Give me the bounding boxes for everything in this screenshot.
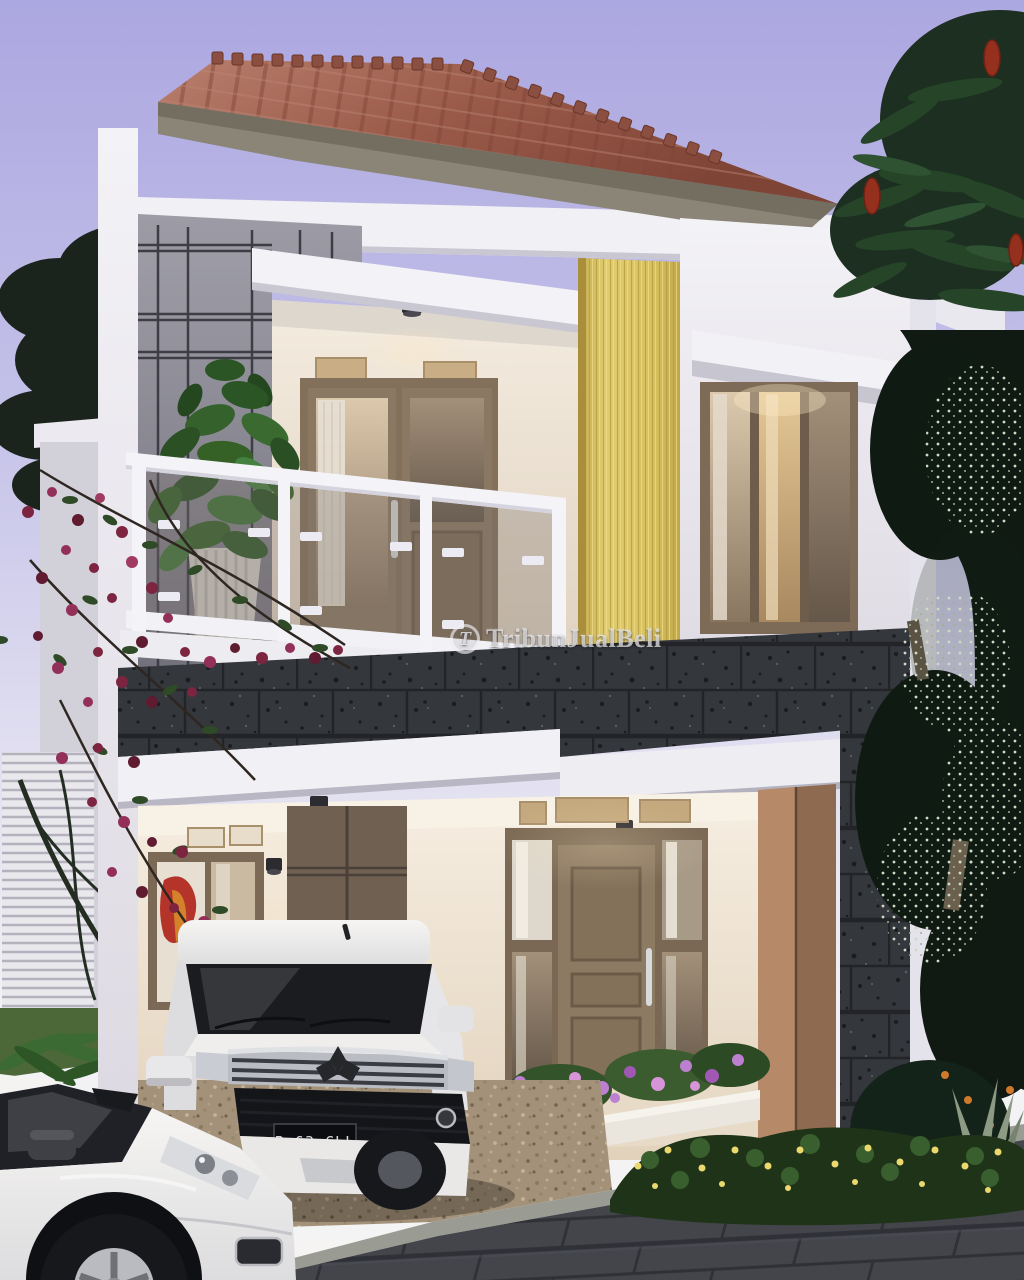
hatchback-fog-light: [236, 1238, 282, 1265]
render-canvas: B 63 CLL: [0, 0, 1024, 1280]
railing-post: [552, 502, 566, 660]
suv-fog-light: [437, 1109, 455, 1127]
railing-post: [278, 480, 290, 644]
upper-window: [700, 382, 858, 634]
yellow-accent-strip: [578, 258, 688, 662]
carport-transom-vent: [230, 826, 262, 845]
suv-mirror-right: [438, 1006, 474, 1032]
suv-roof: [178, 920, 430, 968]
scene: B 63 CLL: [0, 0, 1024, 1280]
terracotta-pilasters: [758, 784, 836, 1154]
balcony-transom-vent: [316, 358, 366, 380]
entrance-door-handle: [646, 948, 652, 1006]
suv-headlight-right: [448, 1058, 474, 1092]
entrance: [495, 798, 715, 1092]
left-louver-fence: [2, 752, 94, 1008]
railing-post: [132, 462, 146, 634]
carport-transom-vent: [188, 828, 224, 847]
suv-headlight-left: [196, 1052, 228, 1082]
carport-downlight: [266, 858, 282, 875]
railing-post: [420, 492, 432, 654]
